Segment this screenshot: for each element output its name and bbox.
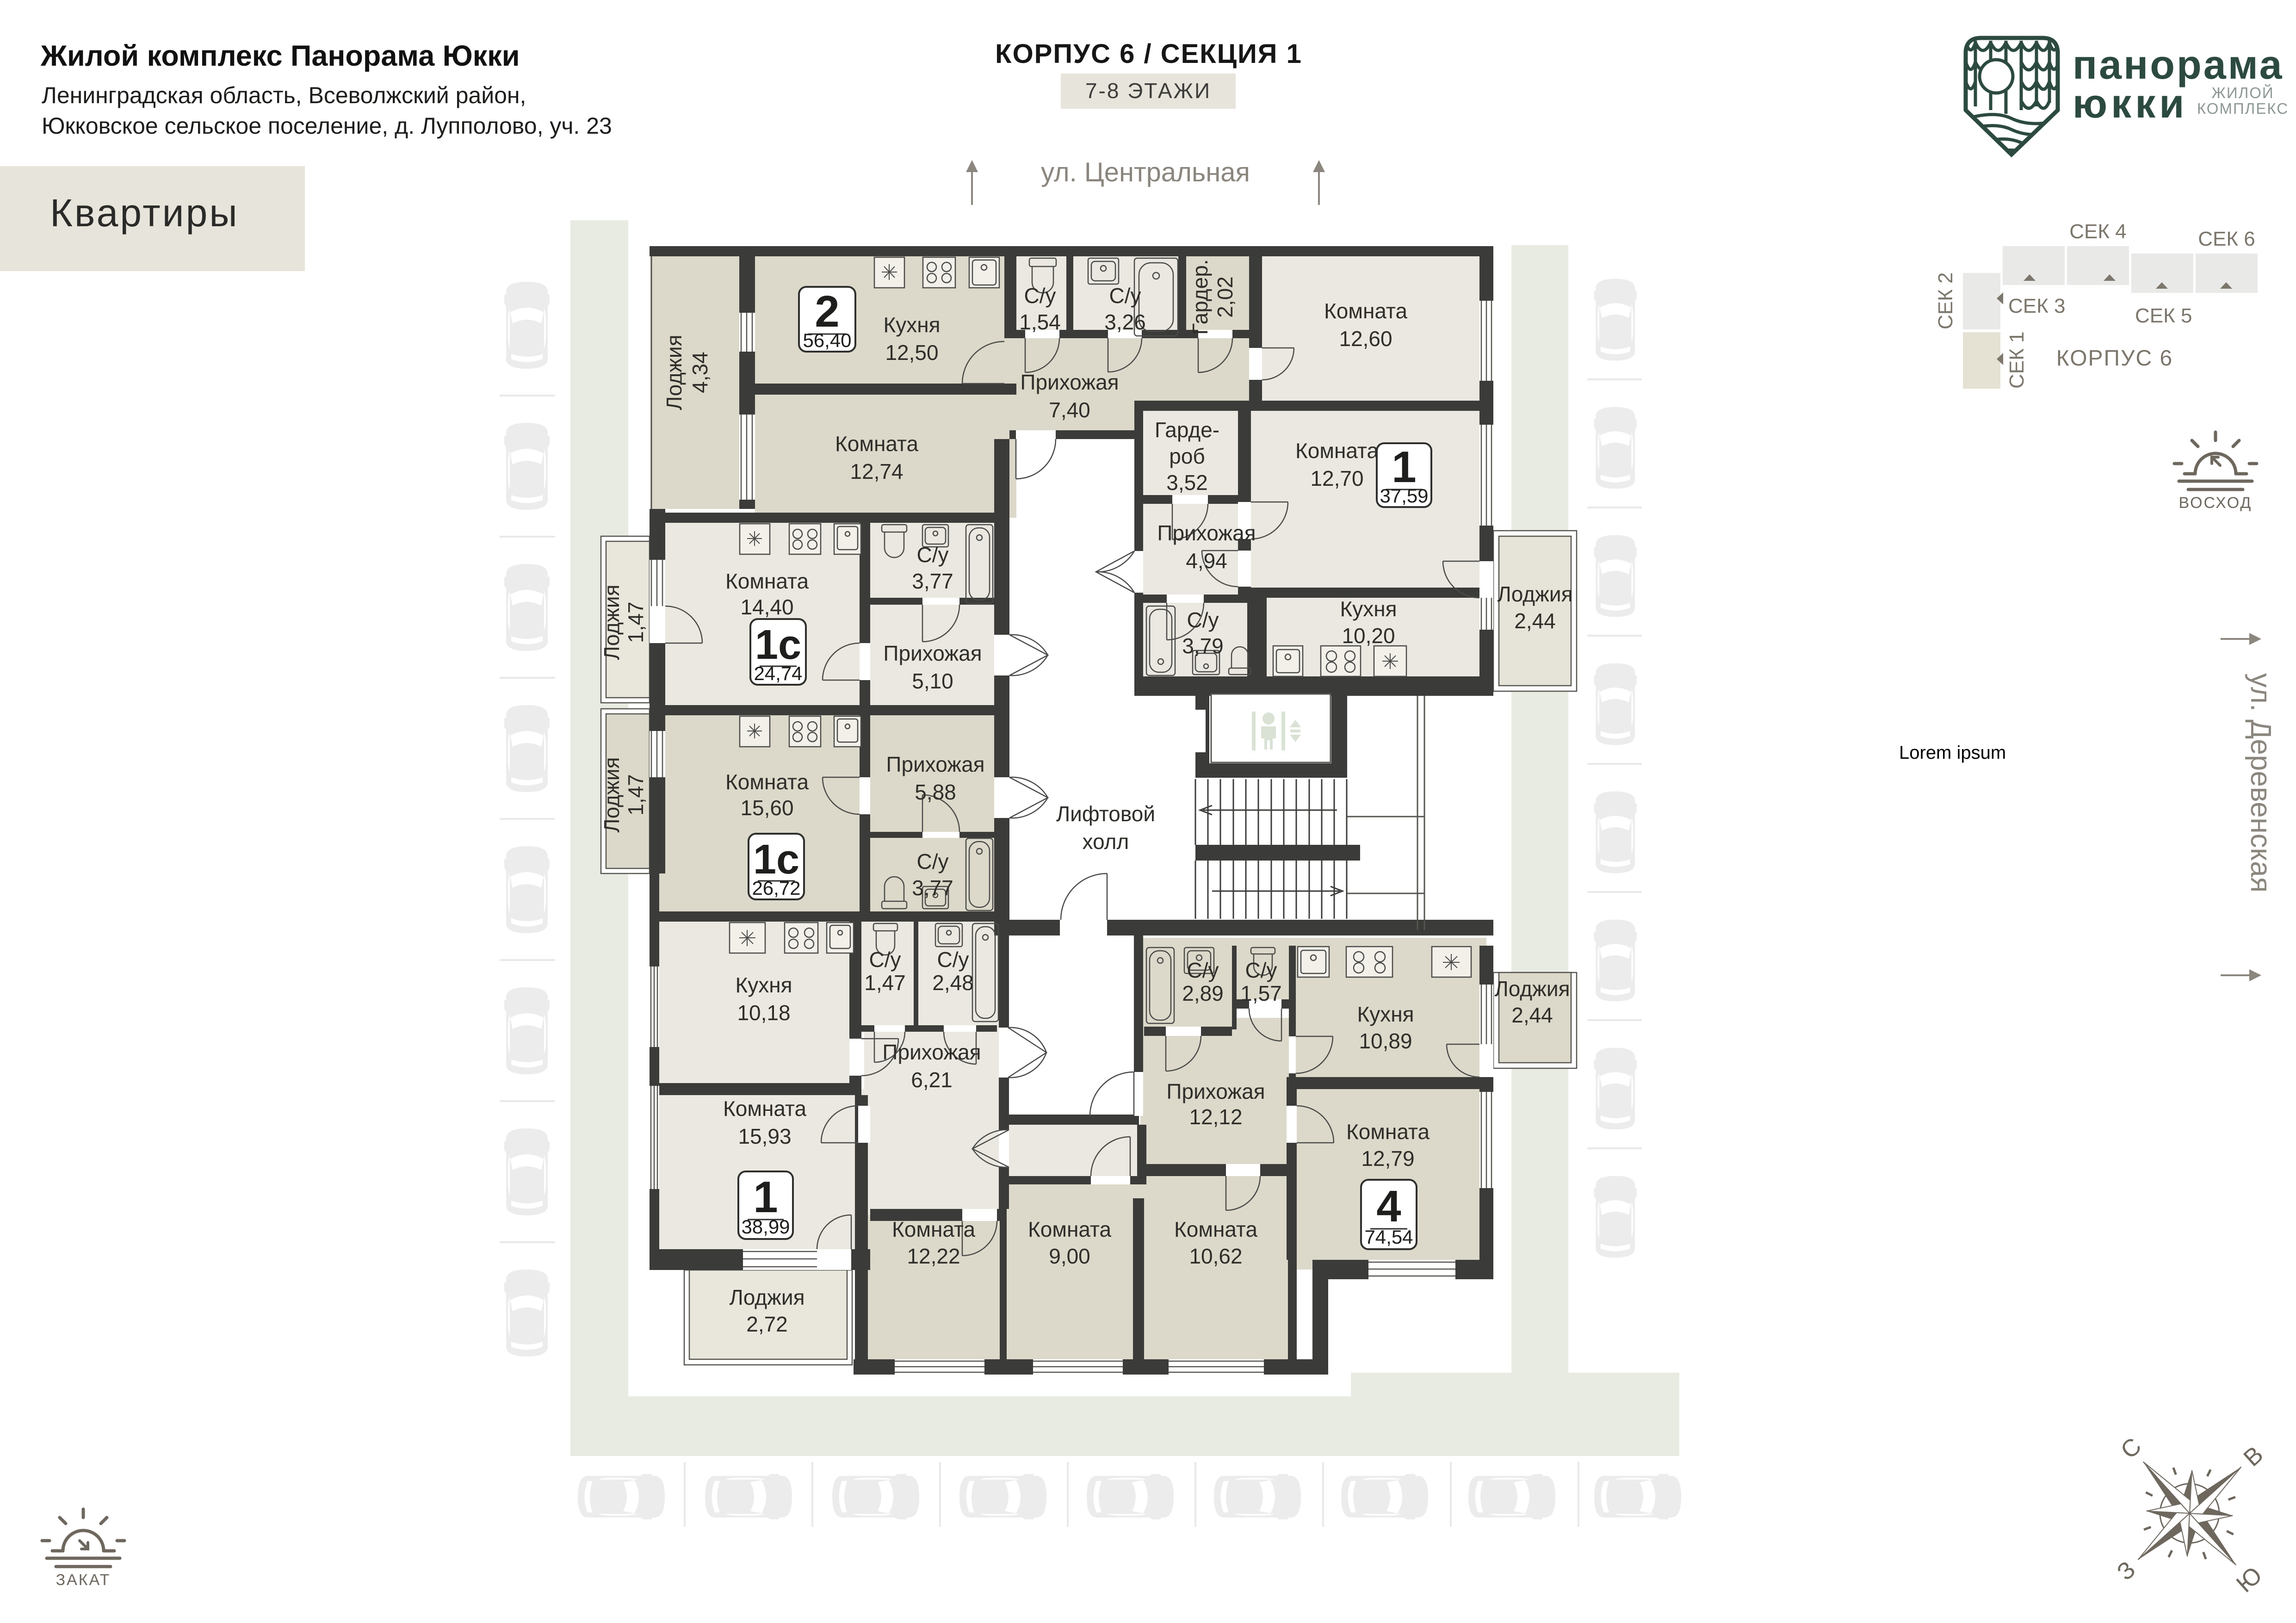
svg-text:С/у: С/у [1187, 958, 1219, 982]
svg-text:Прихожая: Прихожая [1157, 521, 1256, 545]
svg-text:7-8 ЭТАЖИ: 7-8 ЭТАЖИ [1085, 79, 1211, 103]
svg-text:Комната: Комната [1028, 1217, 1112, 1241]
svg-text:СЕК 1: СЕК 1 [2005, 332, 2028, 389]
svg-text:5,88: 5,88 [915, 780, 956, 804]
svg-text:Лоджия: Лоджия [600, 757, 624, 833]
svg-text:1с: 1с [753, 836, 799, 883]
svg-text:56,40: 56,40 [803, 329, 851, 351]
svg-text:Прихожая: Прихожая [882, 1040, 981, 1064]
svg-text:Гарде-: Гарде- [1155, 418, 1219, 442]
svg-text:1: 1 [1392, 442, 1416, 492]
svg-text:Лоджия: Лоджия [662, 335, 686, 410]
svg-text:роб: роб [1169, 444, 1205, 468]
svg-text:12,60: 12,60 [1339, 327, 1392, 351]
svg-text:1,57: 1,57 [1240, 981, 1282, 1005]
svg-text:ЗАКАТ: ЗАКАТ [56, 1571, 111, 1589]
svg-text:Кухня: Кухня [1357, 1002, 1414, 1026]
svg-text:ВОСХОД: ВОСХОД [2179, 494, 2253, 512]
svg-text:10,62: 10,62 [1189, 1244, 1242, 1268]
svg-text:Комната: Комната [1174, 1217, 1258, 1241]
svg-text:Лоджия: Лоджия [730, 1285, 805, 1309]
svg-text:1,47: 1,47 [624, 774, 648, 816]
svg-text:15,60: 15,60 [740, 796, 793, 820]
svg-text:Кухня: Кухня [735, 973, 792, 997]
svg-text:Lorem ipsum: Lorem ipsum [1899, 743, 2006, 763]
svg-text:74,54: 74,54 [1364, 1226, 1413, 1248]
svg-text:10,18: 10,18 [737, 1001, 790, 1025]
svg-text:2,44: 2,44 [1514, 609, 1556, 633]
svg-text:юкки: юкки [2073, 81, 2188, 126]
svg-text:С/у: С/у [1245, 958, 1277, 982]
svg-text:Прихожая: Прихожая [1020, 370, 1119, 394]
svg-text:Комната: Комната [725, 770, 809, 794]
svg-text:5,10: 5,10 [912, 669, 953, 693]
svg-text:Комната: Комната [725, 569, 809, 593]
svg-text:24,74: 24,74 [754, 663, 802, 684]
svg-text:1,54: 1,54 [1019, 310, 1061, 334]
svg-text:Прихожая: Прихожая [886, 752, 984, 776]
svg-text:Лифтовой: Лифтовой [1056, 802, 1155, 826]
svg-text:2,44: 2,44 [1511, 1003, 1553, 1027]
svg-text:37,59: 37,59 [1380, 485, 1428, 507]
svg-text:12,22: 12,22 [907, 1244, 960, 1268]
svg-text:Лоджия: Лоджия [600, 585, 624, 660]
svg-text:С/у: С/у [869, 948, 901, 972]
svg-text:ул. Центральная: ул. Центральная [1041, 157, 1250, 187]
svg-text:холл: холл [1083, 830, 1129, 854]
svg-text:КОРПУС 6 / СЕКЦИЯ 1: КОРПУС 6 / СЕКЦИЯ 1 [995, 39, 1302, 69]
svg-text:4,94: 4,94 [1186, 549, 1227, 573]
svg-text:Прихожая: Прихожая [883, 641, 982, 665]
svg-text:С/у: С/у [937, 948, 969, 972]
svg-text:12,74: 12,74 [850, 459, 903, 483]
svg-text:КОМПЛЕКС: КОМПЛЕКС [2197, 100, 2289, 117]
svg-text:Комната: Комната [835, 432, 919, 456]
svg-text:Кухня: Кухня [883, 313, 940, 337]
svg-text:12,70: 12,70 [1310, 466, 1363, 490]
svg-text:Лоджия: Лоджия [1495, 977, 1570, 1001]
svg-text:С/у: С/у [917, 849, 949, 873]
svg-text:6,21: 6,21 [911, 1068, 953, 1092]
svg-text:Комната: Комната [892, 1217, 976, 1241]
svg-text:1,47: 1,47 [624, 601, 648, 643]
svg-text:Жилой комплекс Панорама Юкки: Жилой комплекс Панорама Юкки [40, 40, 520, 72]
svg-text:Прихожая: Прихожая [1166, 1079, 1265, 1103]
svg-text:ул. Деревенская: ул. Деревенская [2245, 673, 2277, 892]
svg-text:2,72: 2,72 [746, 1312, 788, 1336]
svg-text:26,72: 26,72 [752, 877, 800, 899]
svg-text:38,99: 38,99 [741, 1216, 790, 1238]
svg-text:Комната: Комната [723, 1096, 807, 1121]
svg-text:2,48: 2,48 [932, 971, 974, 995]
svg-text:12,79: 12,79 [1361, 1146, 1414, 1171]
svg-text:3,77: 3,77 [912, 876, 953, 900]
svg-text:С/у: С/у [1109, 284, 1141, 308]
svg-text:Комната: Комната [1324, 299, 1408, 323]
svg-text:3,52: 3,52 [1166, 471, 1208, 495]
svg-text:2,89: 2,89 [1182, 981, 1224, 1005]
svg-text:1с: 1с [755, 622, 801, 668]
svg-text:10,89: 10,89 [1359, 1029, 1412, 1053]
svg-text:12,50: 12,50 [885, 341, 938, 365]
svg-text:3,77: 3,77 [912, 569, 953, 593]
svg-text:4: 4 [1376, 1182, 1401, 1231]
svg-text:10,20: 10,20 [1342, 624, 1395, 648]
svg-text:12,12: 12,12 [1189, 1105, 1242, 1129]
svg-text:С/у: С/у [1187, 608, 1219, 632]
svg-text:Квартиры: Квартиры [50, 191, 239, 235]
svg-text:СЕК 2: СЕК 2 [1934, 273, 1957, 329]
svg-text:Комната: Комната [1295, 439, 1379, 463]
svg-text:С/у: С/у [1024, 284, 1056, 308]
svg-text:7,40: 7,40 [1049, 398, 1090, 422]
svg-text:3,79: 3,79 [1182, 634, 1224, 658]
svg-text:С/у: С/у [917, 543, 949, 567]
svg-text:2,02: 2,02 [1213, 276, 1237, 318]
svg-text:14,40: 14,40 [740, 595, 793, 619]
svg-text:2: 2 [815, 287, 839, 336]
svg-text:1: 1 [753, 1172, 778, 1222]
svg-text:СЕК 5: СЕК 5 [2135, 304, 2192, 327]
svg-text:15,93: 15,93 [738, 1124, 791, 1148]
svg-text:9,00: 9,00 [1049, 1244, 1090, 1268]
svg-text:КОРПУС 6: КОРПУС 6 [2056, 346, 2173, 371]
svg-text:Кухня: Кухня [1340, 597, 1397, 621]
svg-text:Комната: Комната [1346, 1120, 1430, 1144]
svg-text:1,47: 1,47 [864, 971, 906, 995]
svg-text:4,34: 4,34 [688, 352, 712, 393]
svg-text:ЖИЛОЙ: ЖИЛОЙ [2211, 84, 2274, 101]
svg-text:СЕК 6: СЕК 6 [2198, 228, 2255, 250]
svg-text:Лоджия: Лоджия [1498, 582, 1573, 606]
svg-text:Юкковское сельское поселение,: Юкковское сельское поселение, д. Лупполо… [42, 113, 612, 139]
svg-text:Гардер.: Гардер. [1188, 259, 1212, 335]
svg-text:СЕК 4: СЕК 4 [2069, 220, 2126, 243]
svg-text:СЕК 3: СЕК 3 [2008, 295, 2065, 317]
svg-text:Ленинградская область, Всеволж: Ленинградская область, Всеволжский район… [42, 82, 526, 108]
svg-text:3,26: 3,26 [1104, 310, 1146, 334]
